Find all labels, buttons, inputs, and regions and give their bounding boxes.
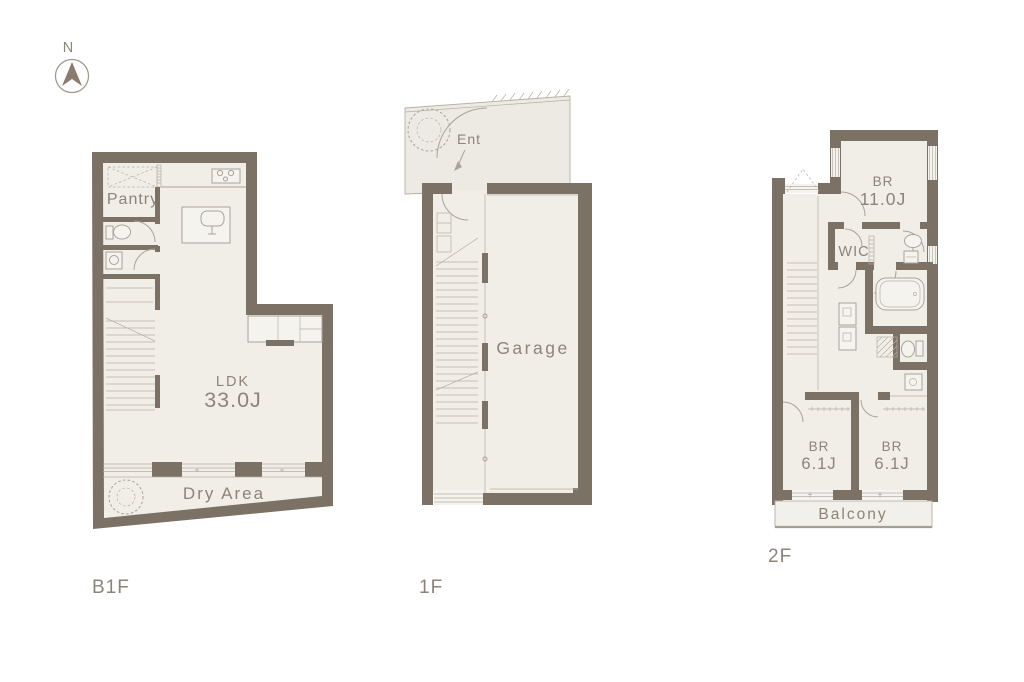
1f-approach-slab: Ent (405, 89, 570, 194)
floor-label-2f: 2F (768, 546, 792, 567)
wic-label: WIC (838, 244, 869, 260)
2f-toilet-icon (916, 341, 923, 356)
kitchen-island (182, 207, 230, 243)
floorplan-b1f: Pantry (92, 152, 333, 598)
br-right-label: BR (882, 439, 903, 454)
toilet-icon (106, 226, 113, 239)
ent-label: Ent (457, 131, 481, 147)
floor-label-b1f: B1F (92, 577, 130, 598)
floorplan-image: N Pantry (0, 0, 1024, 682)
washbasin-icon (106, 252, 122, 269)
br-main-label: BR (873, 174, 894, 189)
floor-label-1f: 1F (419, 577, 443, 598)
garage-label: Garage (496, 338, 569, 358)
br-left-size-label: 6.1J (801, 455, 836, 473)
balcony-label: Balcony (818, 506, 887, 523)
floorplan-1f: Ent (405, 89, 592, 598)
pantry-label: Pantry (107, 191, 159, 208)
1f-entry-steps (434, 490, 483, 505)
2f-vanity-icon (905, 374, 922, 390)
north-label: N (63, 40, 73, 56)
b1f-counter (248, 316, 322, 346)
br-right-size-label: 6.1J (874, 455, 909, 473)
floorplan-2f: BR 11.0J WIC (768, 130, 938, 567)
br-main-size-label: 11.0J (860, 189, 907, 209)
dry-area-label: Dry Area (183, 484, 265, 503)
br-left-label: BR (809, 439, 830, 454)
north-indicator: N (56, 40, 89, 93)
ldk-size-label: 33.0J (204, 388, 262, 412)
2f-balcony: Balcony (775, 501, 932, 527)
floorplan-svg: N Pantry (0, 0, 1024, 682)
north-arrow-triangle (62, 62, 82, 86)
